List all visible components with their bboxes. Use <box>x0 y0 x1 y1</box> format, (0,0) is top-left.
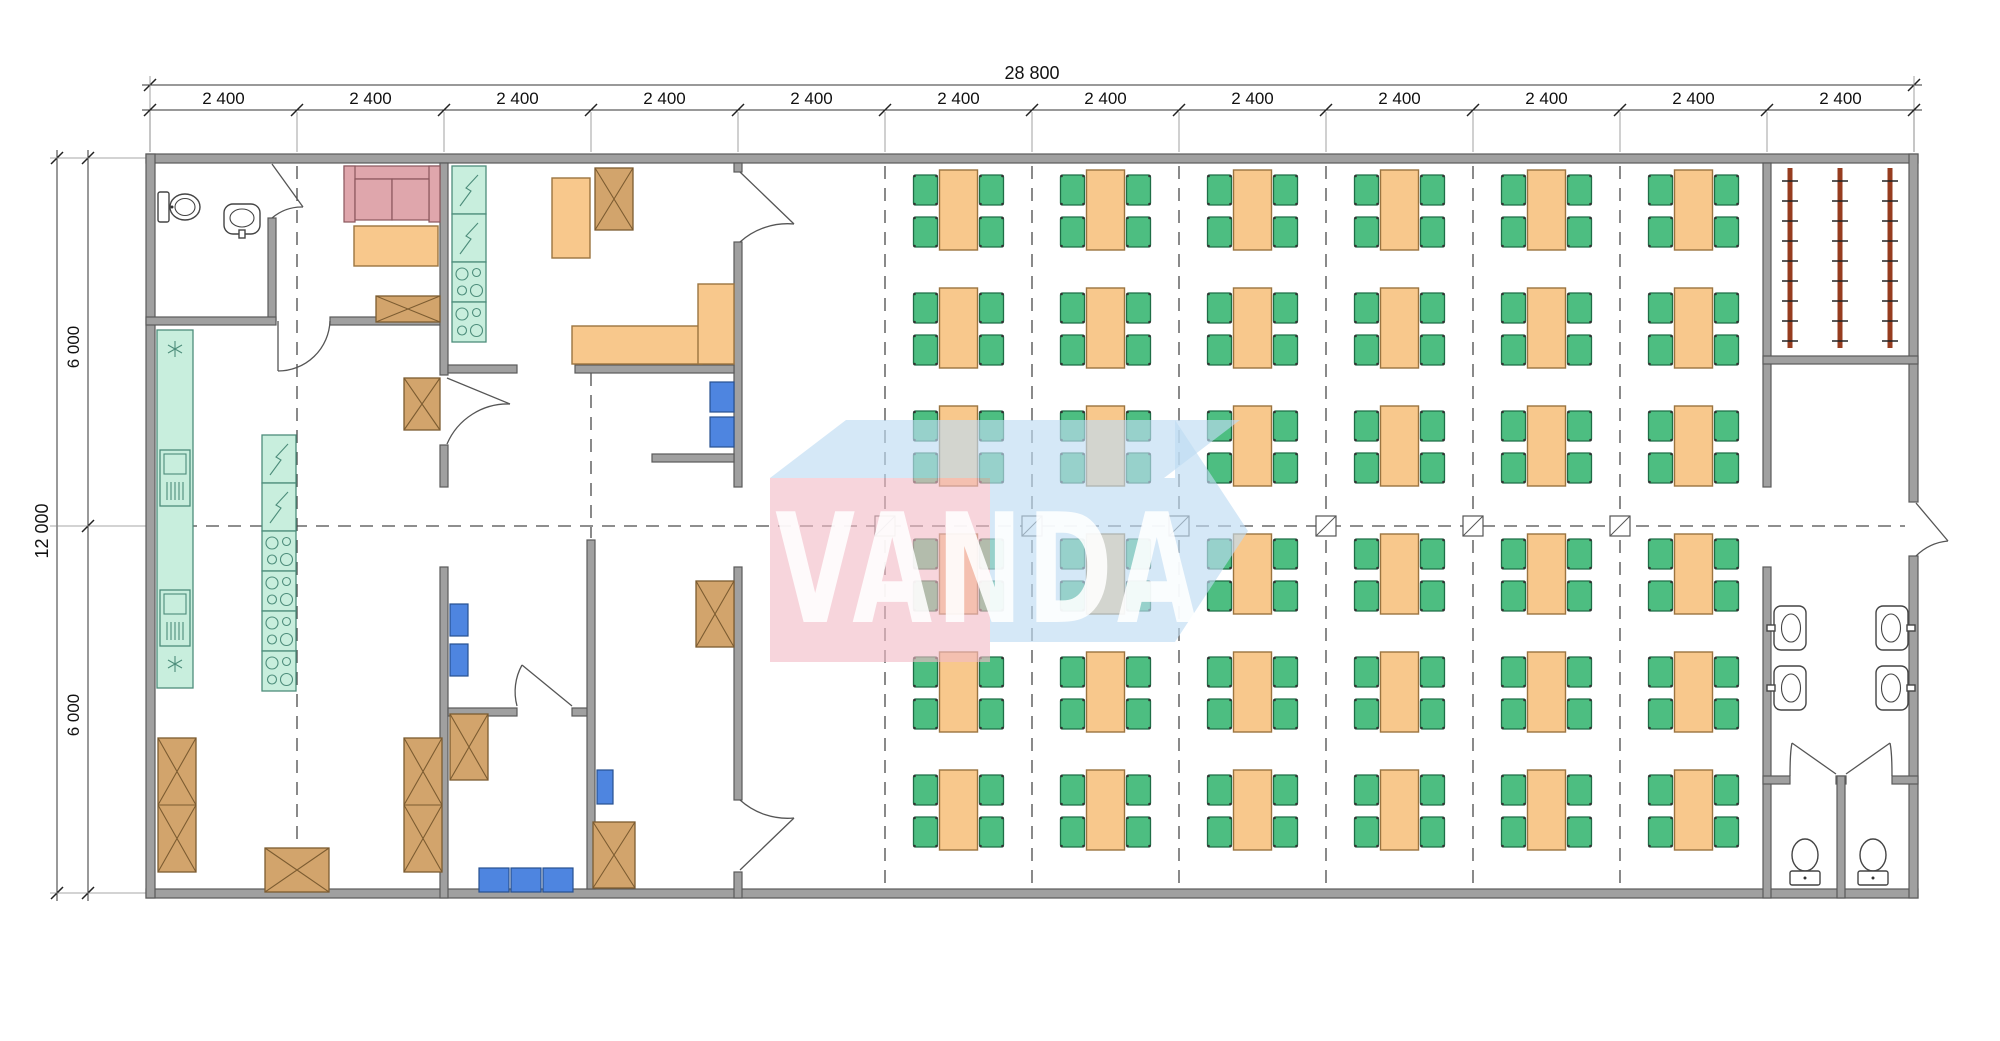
dishwasher-icon <box>160 590 190 646</box>
stove-icon <box>262 531 296 571</box>
dining-table-group <box>1060 288 1151 368</box>
door-leaf <box>1846 743 1890 774</box>
dining-table-group <box>1648 534 1739 614</box>
dining-table-group <box>1501 652 1592 732</box>
bay-depth-label: 6 000 <box>64 694 83 737</box>
dining-table-group <box>1354 534 1445 614</box>
door-arc <box>1916 541 1948 556</box>
watermark-top-face <box>770 420 1240 478</box>
dining-table-group <box>1648 288 1739 368</box>
dining-table-group <box>1207 170 1298 250</box>
dining-table-group <box>913 170 1004 250</box>
overall-depth-label: 12 000 <box>32 503 52 558</box>
watermark-text: VANDA <box>775 480 1201 658</box>
door-leaf <box>522 665 572 706</box>
dining-table-group <box>1354 170 1445 250</box>
sink-icon <box>224 204 260 238</box>
dining-table-group <box>1501 770 1592 850</box>
door-leaf <box>447 378 510 404</box>
dining-table-group <box>1648 652 1739 732</box>
module-dim-label: 2 400 <box>1819 89 1862 108</box>
door-leaf <box>1792 743 1836 774</box>
serving-counter <box>572 326 702 364</box>
crate-icon <box>595 168 633 230</box>
dishwasher-icon <box>160 450 190 506</box>
module-dim-label: 2 400 <box>1084 89 1127 108</box>
crate-icon <box>404 738 442 872</box>
door-leaf <box>740 818 794 870</box>
appliance-flash-icon <box>452 214 486 262</box>
dimension-left-bays: 6 000 6 000 <box>50 150 146 901</box>
dining-table-group <box>1060 770 1151 850</box>
door-arc <box>1890 743 1892 776</box>
dining-table-group <box>1207 652 1298 732</box>
stove-icon <box>262 651 296 691</box>
appliance-flash-icon <box>452 166 486 214</box>
module-dim-label: 2 400 <box>1672 89 1715 108</box>
stove-icon <box>262 571 296 611</box>
drying-rack-icon <box>1882 168 1898 348</box>
door-arc <box>515 665 522 706</box>
dining-table-group <box>1501 170 1592 250</box>
chair-seat <box>597 770 613 804</box>
module-dim-label: 2 400 <box>1525 89 1568 108</box>
dining-table-group <box>1648 170 1739 250</box>
module-dim-label: 2 400 <box>790 89 833 108</box>
sofa-icon <box>344 166 440 222</box>
crate-icon <box>450 714 488 780</box>
chair-seat <box>543 868 573 892</box>
door-arc <box>740 800 794 818</box>
waiting-seat <box>710 417 734 447</box>
sink-icon <box>1767 666 1806 710</box>
prep-table <box>552 178 590 258</box>
appliance-flash-icon <box>262 483 296 531</box>
dining-table-group <box>1648 406 1739 486</box>
crate-icon <box>696 581 734 647</box>
wc-room <box>158 192 260 238</box>
serving-counter <box>698 284 734 364</box>
crate-icon <box>265 848 329 892</box>
door-leaf <box>1916 503 1948 541</box>
column-marker <box>1610 516 1630 536</box>
drying-rack-room <box>1782 168 1898 348</box>
dining-table-group <box>1354 652 1445 732</box>
module-dim-label: 2 400 <box>349 89 392 108</box>
stove-icon <box>452 262 486 302</box>
crate-icon <box>593 822 635 888</box>
dining-table-group <box>1207 288 1298 368</box>
floor-plan-canvas: 28 800 12 000 6 000 6 000 2 4002 4002 40… <box>0 0 2000 1041</box>
chair-seat <box>479 868 509 892</box>
door-arc <box>272 207 303 218</box>
crate-icon <box>376 296 440 322</box>
door-leaf <box>272 164 303 207</box>
module-dim-label: 2 400 <box>643 89 686 108</box>
dining-table-group <box>913 770 1004 850</box>
drying-rack-icon <box>1832 168 1848 348</box>
stove-icon <box>262 611 296 651</box>
stove-icon <box>452 302 486 342</box>
door-arc <box>447 404 510 444</box>
chair-seat <box>511 868 541 892</box>
column-marker <box>1463 516 1483 536</box>
bay-depth-label: 6 000 <box>64 326 83 369</box>
watermark: VANDA <box>770 420 1248 662</box>
floor-plan-drawing: 28 800 12 000 6 000 6 000 2 4002 4002 40… <box>0 0 2000 1041</box>
dining-table-group <box>1648 770 1739 850</box>
dining-table-group <box>1207 770 1298 850</box>
lounge-room <box>344 166 440 322</box>
appliance-flash-icon <box>262 435 296 483</box>
module-dim-label: 2 400 <box>1378 89 1421 108</box>
dining-table-group <box>1354 288 1445 368</box>
drying-rack-icon <box>1782 168 1798 348</box>
door-arc <box>740 224 794 242</box>
dining-table-group <box>1354 770 1445 850</box>
module-dim-label: 2 400 <box>1231 89 1274 108</box>
chair-seat <box>450 604 468 636</box>
door-arc <box>1790 743 1792 776</box>
toilet-icon <box>1790 839 1820 885</box>
kitchen-island <box>262 435 296 691</box>
dining-table-group <box>913 652 1004 732</box>
waiting-seat <box>710 382 734 412</box>
toilet-icon <box>1858 839 1888 885</box>
dining-table-group <box>1060 170 1151 250</box>
overall-width-label: 28 800 <box>1004 63 1059 83</box>
dining-table-group <box>1060 652 1151 732</box>
dining-table-group <box>1501 534 1592 614</box>
door-arc <box>278 321 330 371</box>
dining-table-group <box>1207 406 1298 486</box>
door-leaf <box>740 172 794 224</box>
dining-table-group <box>1501 288 1592 368</box>
dining-table-group <box>1501 406 1592 486</box>
crate-icon <box>158 738 196 872</box>
dining-table-group <box>1354 406 1445 486</box>
lounge-table <box>354 226 438 266</box>
module-dim-label: 2 400 <box>937 89 980 108</box>
kitchen-room <box>157 330 442 892</box>
toilet-icon <box>158 192 200 222</box>
sink-icon <box>1767 606 1806 650</box>
dining-table-group <box>913 288 1004 368</box>
crate-icon <box>404 378 440 430</box>
column-marker <box>1316 516 1336 536</box>
dimension-left-overall: 12 000 <box>32 150 63 901</box>
module-dim-label: 2 400 <box>496 89 539 108</box>
module-dim-label: 2 400 <box>202 89 245 108</box>
chair-seat <box>450 644 468 676</box>
